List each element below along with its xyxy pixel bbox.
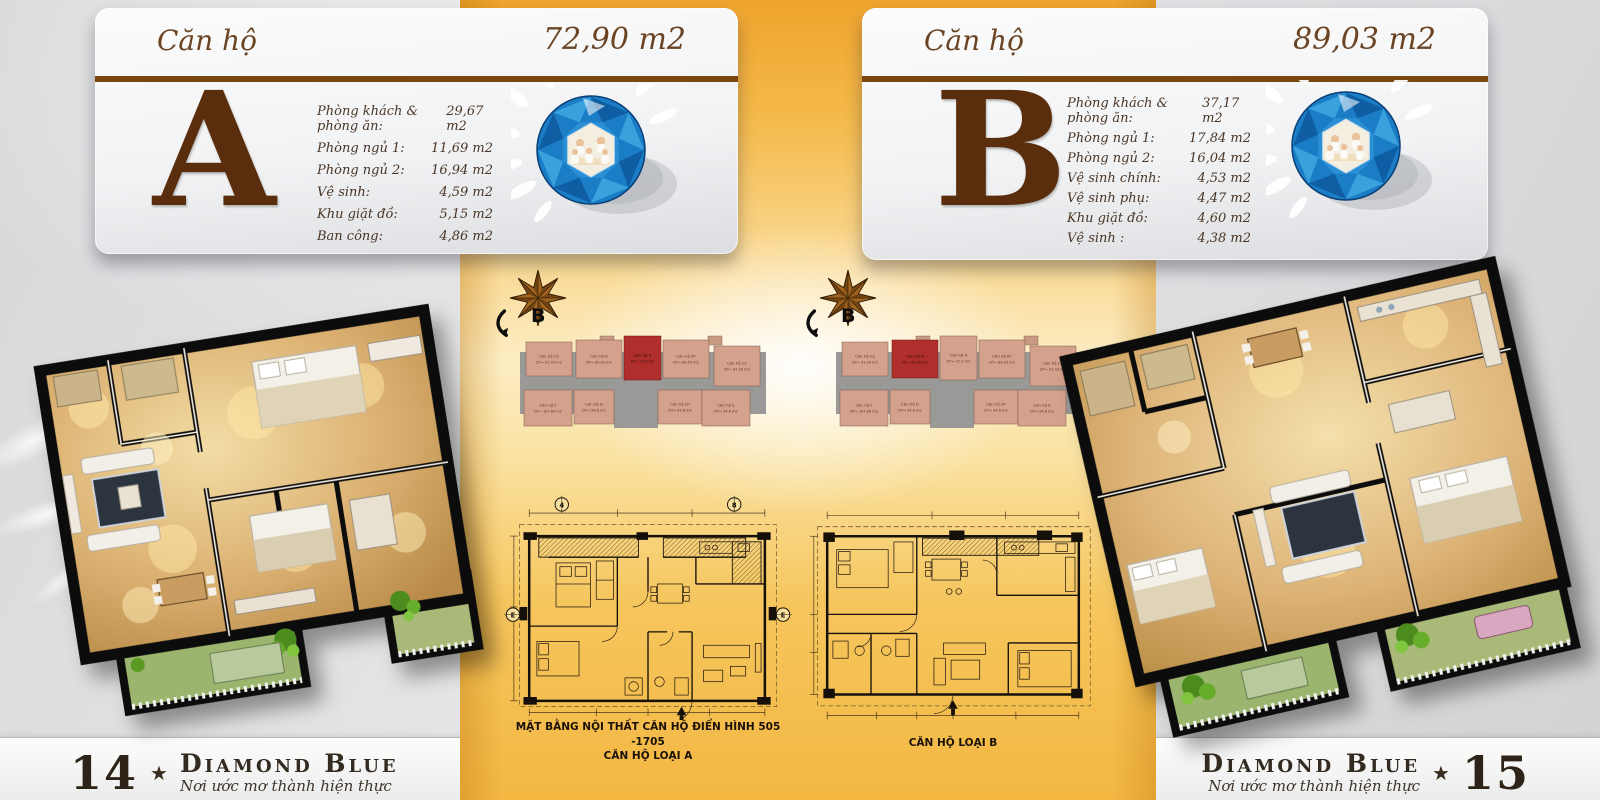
- floorplan-a-caption: MẶT BẰNG NỘI THẤT CĂN HỘ ĐIỂN HÌNH 505 -…: [500, 720, 796, 764]
- room-area-value: 4,59 m2: [439, 185, 493, 200]
- site-unit-name: Căn hộ B: [590, 354, 608, 359]
- site-unit-name: Căn hộ C2: [855, 354, 876, 359]
- room-label: Phòng khách & phòng ăn:: [317, 104, 446, 134]
- site-unit-area: DT= 72,9 m2: [631, 360, 654, 364]
- grid-bubble-label: 8: [732, 501, 737, 509]
- room-area-value: 11,69 m2: [431, 141, 493, 156]
- footer-right: Diamond Blue Nơi ước mơ thành hiện thực …: [1201, 750, 1530, 796]
- room-row: Khu giặt đồ:4,60 m2: [1067, 211, 1251, 226]
- room-row: Ban công:4,86 m2: [317, 229, 493, 244]
- site-unit-name: Căn hộ B*: [992, 354, 1012, 359]
- room-label: Phòng ngủ 2:: [317, 163, 405, 178]
- room-area-value: 29,67 m2: [446, 104, 493, 134]
- star-icon: ★: [150, 761, 168, 785]
- site-unit-name: Căn hộ C2: [539, 354, 560, 359]
- site-unit-name: Căn hộ A: [634, 353, 652, 358]
- page-number-left: 14: [70, 750, 138, 796]
- site-unit-area: DT= 89,03 m2: [586, 361, 612, 365]
- apartment-card-b: Căn hộ 89,03 m2 B Phòng khách & phòng ăn…: [862, 8, 1488, 260]
- site-unit-area: DT= 94,6 m2: [582, 409, 605, 413]
- footer-left: 14 ★ Diamond Blue Nơi ước mơ thành hiện …: [70, 750, 399, 796]
- site-unit-area: DT= 72,9 m2: [947, 360, 970, 364]
- room-row: Phòng khách & phòng ăn:37,17 m2: [1067, 96, 1251, 126]
- room-label: Vệ sinh phụ:: [1067, 191, 1149, 206]
- site-unit-name: Căn hộ D*: [986, 402, 1006, 407]
- site-unit-area: DT= 89,03 m2: [902, 361, 928, 365]
- floorplan-drawing-b: [806, 500, 1100, 724]
- diamond-gem-logo: [511, 84, 723, 250]
- room-area-value: 37,17 m2: [1202, 96, 1251, 126]
- room-row: Vệ sinh :4,38 m2: [1067, 231, 1251, 246]
- grid-bubble-label: E: [511, 611, 516, 619]
- room-area-value: 5,15 m2: [439, 207, 493, 222]
- brand-tagline: Nơi ước mơ thành hiện thực: [1208, 777, 1420, 795]
- brand-block: Diamond Blue Nơi ước mơ thành hiện thực: [1201, 751, 1420, 795]
- room-row: Vệ sinh chính:4,53 m2: [1067, 171, 1251, 186]
- star-icon: ★: [1432, 761, 1450, 785]
- floorplan-a-caption-line1: MẶT BẰNG NỘI THẤT CĂN HỘ ĐIỂN HÌNH 505 -…: [500, 720, 796, 749]
- site-unit-name: Căn hộ C1: [727, 361, 748, 366]
- brand-name: Diamond Blue: [1201, 751, 1420, 777]
- room-label: Phòng ngủ 2:: [1067, 151, 1155, 166]
- card-a-title: Căn hộ: [157, 24, 257, 57]
- card-b-letter: B: [934, 72, 1068, 230]
- floorplan-a-caption-line2: CĂN HỘ LOẠI A: [500, 749, 796, 764]
- room-row: Vệ sinh phụ:4,47 m2: [1067, 191, 1251, 206]
- site-unit-area: DT= 107,69 m2: [534, 410, 562, 414]
- compass-north-label: B: [841, 305, 855, 327]
- page-number-right: 15: [1462, 750, 1530, 796]
- site-unit-name: Căn hộ D*: [670, 402, 690, 407]
- room-row: Khu giặt đồ:5,15 m2: [317, 207, 493, 222]
- site-unit-name: Căn hộ B*: [676, 354, 696, 359]
- site-unit-name: Căn hộ D: [901, 402, 919, 407]
- room-label: Vệ sinh:: [317, 185, 370, 200]
- room-label: Phòng khách & phòng ăn:: [1067, 96, 1202, 126]
- brand-block: Diamond Blue Nơi ước mơ thành hiện thực: [180, 751, 399, 795]
- diamond-gem-logo: [1266, 80, 1478, 246]
- brand-name: Diamond Blue: [180, 751, 399, 777]
- room-row: Phòng ngủ 2:16,94 m2: [317, 163, 493, 178]
- card-a-room-table: Phòng khách & phòng ăn:29,67 m2Phòng ngủ…: [317, 104, 493, 244]
- room-label: Ban công:: [317, 229, 383, 244]
- brand-tagline: Nơi ước mơ thành hiện thực: [180, 777, 399, 795]
- room-area-value: 4,60 m2: [1197, 211, 1251, 226]
- room-row: Phòng ngủ 1:17,84 m2: [1067, 131, 1251, 146]
- site-unit-name: Căn hộ E: [717, 403, 735, 408]
- room-label: Vệ sinh :: [1067, 231, 1124, 246]
- site-unit-area: DT= 91,43 m2: [724, 368, 750, 372]
- room-row: Phòng ngủ 1:11,69 m2: [317, 141, 493, 156]
- site-unit-name: Căn hộ F: [855, 403, 873, 408]
- room-area-value: 16,94 m2: [431, 163, 493, 178]
- site-unit-area: DT= 94,6 m2: [714, 410, 737, 414]
- room-area-value: 16,04 m2: [1189, 151, 1251, 166]
- room-label: Khu giặt đồ:: [1067, 211, 1148, 226]
- site-unit-area: DT= 89,03 m2: [673, 361, 699, 365]
- site-unit-area: DT= 94,6 m2: [668, 409, 691, 413]
- site-unit-area: DT= 91,43 m2: [852, 361, 878, 365]
- site-unit-name: Căn hộ F: [539, 403, 557, 408]
- site-unit-area: DT= 89,03 m2: [989, 361, 1015, 365]
- card-b-room-table: Phòng khách & phòng ăn:37,17 m2Phòng ngủ…: [1067, 96, 1251, 246]
- room-label: Khu giặt đồ:: [317, 207, 398, 222]
- room-area-value: 4,38 m2: [1197, 231, 1251, 246]
- floorplan-b-caption: CĂN HỘ LOẠI B: [806, 736, 1100, 751]
- site-unit-name: Căn hộ B: [906, 354, 924, 359]
- card-a-total-area: 72,90 m2: [543, 22, 686, 57]
- room-label: Vệ sinh chính:: [1067, 171, 1161, 186]
- card-a-letter: A: [153, 72, 276, 230]
- compass-north-label: B: [531, 305, 545, 327]
- brochure-page: Căn hộ 72,90 m2 A Phòng khách & phòng ăn…: [0, 0, 1600, 800]
- card-b-total-area: 89,03 m2: [1293, 22, 1436, 57]
- site-unit-name: Căn hộ D: [585, 402, 603, 407]
- room-row: Phòng khách & phòng ăn:29,67 m2: [317, 104, 493, 134]
- grid-bubble-label: E: [781, 611, 786, 619]
- site-unit-area: DT= 94,6 m2: [898, 409, 921, 413]
- room-row: Phòng ngủ 2:16,04 m2: [1067, 151, 1251, 166]
- site-unit-area: DT= 91,43 m2: [536, 361, 562, 365]
- site-key-plan-unit-a: Căn hộ C2DT= 91,43 m2Căn hộ BDT= 89,03 m…: [512, 328, 774, 432]
- card-b-title: Căn hộ: [924, 24, 1024, 57]
- site-unit-area: DT= 107,69 m2: [850, 410, 878, 414]
- room-label: Phòng ngủ 1:: [1067, 131, 1155, 146]
- grid-bubble-label: 4: [559, 501, 564, 509]
- apartment-3d-render-a: [7, 289, 515, 759]
- room-row: Vệ sinh:4,59 m2: [317, 185, 493, 200]
- floorplan-drawing-a: 4 8 E E: [503, 492, 793, 720]
- room-label: Phòng ngủ 1:: [317, 141, 405, 156]
- site-unit-area: DT= 94,6 m2: [984, 409, 1007, 413]
- room-area-value: 4,47 m2: [1197, 191, 1251, 206]
- site-unit-name: Căn hộ A: [950, 353, 968, 358]
- apartment-card-a: Căn hộ 72,90 m2 A Phòng khách & phòng ăn…: [95, 8, 738, 254]
- room-area-value: 4,86 m2: [439, 229, 493, 244]
- room-area-value: 17,84 m2: [1189, 131, 1251, 146]
- room-area-value: 4,53 m2: [1197, 171, 1251, 186]
